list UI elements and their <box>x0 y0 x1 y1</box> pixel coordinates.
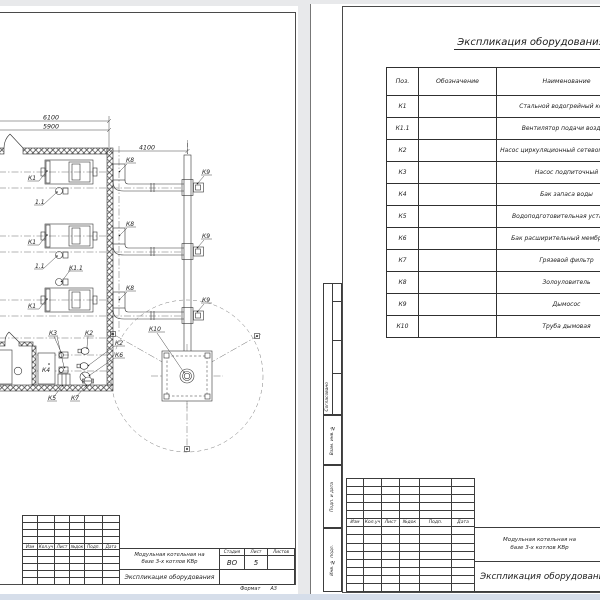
dimension-label: 4100 <box>139 145 155 152</box>
sheets-total <box>268 556 295 570</box>
dimension-label: 6100 <box>43 115 59 122</box>
title-block: Изм Кол.уч Лист №док Подп. Дата Модульна… <box>22 515 294 585</box>
side-stamp-inv-orig: Инв. № подл. <box>323 528 342 592</box>
sheets-label: Листов <box>268 549 295 556</box>
document-title: Экспликация оборудования <box>475 562 600 591</box>
main-stamp: Модульная котельная на базе 3-х котлов К… <box>119 548 295 585</box>
side-stamp-sign-date: Подп. и дата <box>323 465 342 528</box>
table-row: К1Стальной водогрейный котел <box>387 96 600 118</box>
table-row: К9Дымосос <box>387 294 600 316</box>
sheet-label: Лист <box>245 549 268 556</box>
table-row: К4Бак запаса воды <box>387 184 600 206</box>
table-row: К2Насос циркуляционный сетевого контура <box>387 140 600 162</box>
spec-col-name: Наименование <box>497 68 600 96</box>
spec-title: Экспликация оборудования <box>441 37 600 48</box>
rev-header-ndok: №док <box>70 543 85 550</box>
table-row: К10Труба дымовая <box>387 316 600 338</box>
revision-grid: Изм Кол.уч Лист №док Подп. Дата <box>22 515 120 585</box>
building-walls <box>0 148 113 391</box>
rev-header-data: Дата <box>452 519 475 527</box>
dimension-label: 5900 <box>43 124 59 131</box>
table-row: К5Водоподготовительная установка <box>387 206 600 228</box>
sheet-plan: 6100 5900 4100 <box>0 6 298 594</box>
table-row: К3Насос подпиточный <box>387 162 600 184</box>
side-stamp-approvals: Согласовано <box>323 283 342 415</box>
approval-rows <box>333 284 341 414</box>
stage-label: Стадия <box>220 549 245 556</box>
rev-header-izm: Изм <box>347 519 364 527</box>
window-edge <box>0 594 600 600</box>
rev-header-ndok: №док <box>400 519 420 527</box>
table-row: К8Золоуловитель <box>387 272 600 294</box>
project-name: Модульная котельная на базе 3-х котлов К… <box>475 528 600 562</box>
rev-header-data: Дата <box>103 543 120 550</box>
main-stamp: Модульная котельная на базе 3-х котлов К… <box>474 527 600 592</box>
boiler-room-plan: 6100 5900 4100 <box>0 6 297 515</box>
sheet-specification: Согласовано Взам. инв. № Подп. и дата Ин… <box>310 4 600 596</box>
table-row: К7Грязевой фильтр <box>387 250 600 272</box>
table-row: К1.1Вентилятор подачи воздуха <box>387 118 600 140</box>
approved-cell: Согласовано <box>324 284 333 414</box>
rev-header-list: Лист <box>55 543 70 550</box>
org-cell <box>220 570 295 585</box>
spec-col-pos: Поз. <box>387 68 419 96</box>
rev-header-koluch: Кол.уч <box>364 519 382 527</box>
stage-value: ВО <box>220 556 245 570</box>
spec-table: Поз. Обозначение Наименование К1Стальной… <box>386 67 600 338</box>
document-title: Экспликация оборудования <box>120 570 220 585</box>
format-note: ФорматА3 <box>149 586 289 592</box>
rev-header-podp: Подп. <box>85 543 103 550</box>
rev-header-list: Лист <box>382 519 400 527</box>
sheet-number: 5 <box>245 556 268 570</box>
revision-grid: Изм Кол.уч Лист №док Подп. Дата <box>346 478 475 592</box>
rev-header-podp: Подп. <box>420 519 452 527</box>
table-row: К6Бак расширительный мембранный <box>387 228 600 250</box>
door-swings <box>4 134 23 342</box>
spec-col-designation: Обозначение <box>419 68 497 96</box>
approved-label: Согласовано <box>325 382 330 412</box>
side-stamp-replace-inv: Взам. инв. № <box>323 415 342 465</box>
tag-k4: К4 <box>42 367 50 374</box>
cad-viewer-canvas: { "left_sheet": { "dims": { "top_outer":… <box>0 0 600 600</box>
project-name: Модульная котельная на базе 3-х котлов К… <box>120 549 220 570</box>
rev-header-izm: Изм <box>23 543 38 550</box>
rev-header-koluch: Кол.уч <box>38 543 55 550</box>
